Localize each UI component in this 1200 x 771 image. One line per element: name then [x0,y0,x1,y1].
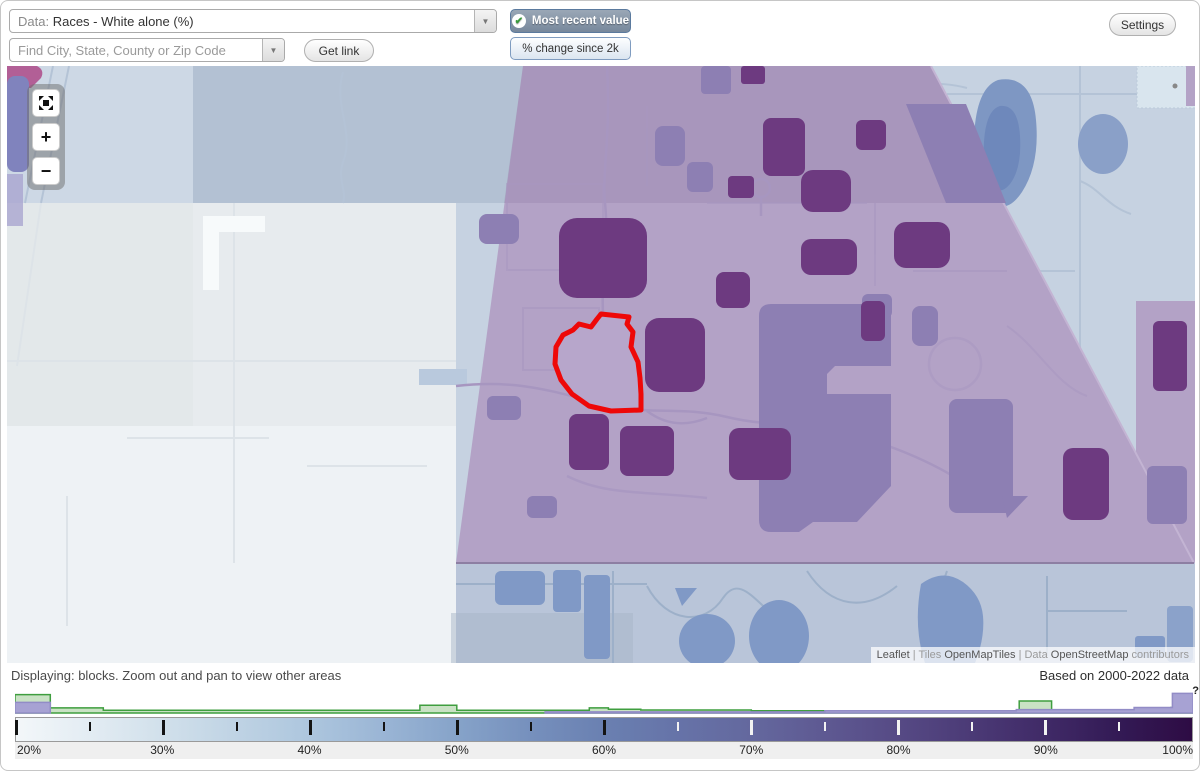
check-icon: ✔ [512,14,526,28]
leaflet-link[interactable]: Leaflet [877,649,910,661]
legend-label: 80% [886,743,910,757]
legend-gradient-bar [15,717,1193,742]
openmaptiles-link[interactable]: OpenMapTiles [944,649,1015,661]
attribution-separator: | [913,649,916,661]
attribution-separator: | [1019,649,1022,661]
app-window: Data: Races - White alone (%) ▼ ▼ Get li… [0,0,1200,771]
legend-tick [677,722,679,731]
pct-change-button[interactable]: % change since 2k [510,37,631,60]
legend-tick [750,720,753,735]
choropleth-block [7,174,23,226]
status-bar: Displaying: blocks. Zoom out and pan to … [7,664,1193,686]
legend-tick [456,720,459,735]
map-attribution: Leaflet | Tiles OpenMapTiles | Data Open… [871,647,1195,663]
dropdown-arrow-icon[interactable]: ▼ [262,39,284,61]
legend-label: 40% [297,743,321,757]
attribution-tiles-prefix: Tiles [918,649,941,661]
legend-tick [1118,722,1120,731]
color-scale-legend: 20%30%40%50%60%70%80%90%100% [15,717,1193,759]
map-controls: + − [27,84,65,190]
location-search[interactable]: ▼ [9,38,285,62]
legend-label: 100% [1162,743,1193,757]
legend-tick [236,722,238,731]
map-canvas[interactable]: + − Leaflet | Tiles OpenMapTiles | Data … [7,66,1195,663]
choropleth-block [7,76,29,172]
data-select-value: Data: Races - White alone (%) [10,14,474,29]
map-tiles [7,66,1195,663]
fullscreen-button[interactable] [32,89,60,117]
attribution-data-prefix: Data [1024,649,1047,661]
legend-label: 30% [150,743,174,757]
legend-tick [1044,720,1047,735]
displaying-status: Displaying: blocks. Zoom out and pan to … [11,668,341,683]
most-recent-value-label: Most recent value [532,15,629,27]
legend-label: 70% [739,743,763,757]
legend-labels: 20%30%40%50%60%70%80%90%100% [15,742,1193,759]
most-recent-value-button[interactable]: ✔ Most recent value [510,9,631,33]
map-building [419,369,467,385]
legend-tick [383,722,385,731]
openstreetmap-link[interactable]: OpenStreetMap [1051,649,1129,661]
tile-region [193,203,456,426]
zoom-in-button[interactable]: + [32,123,60,151]
histogram-plot [15,688,1193,714]
legend-label: 20% [17,743,41,757]
zoom-out-button[interactable]: − [32,157,60,185]
dropdown-arrow-icon[interactable]: ▼ [474,10,496,32]
legend-label: 60% [592,743,616,757]
data-select[interactable]: Data: Races - White alone (%) ▼ [9,9,497,33]
search-input[interactable] [10,43,262,58]
data-vintage-note: Based on 2000-2022 data [1039,668,1189,683]
legend-tick [309,720,312,735]
legend-label: 50% [445,743,469,757]
legend-tick [971,722,973,731]
legend-tick [603,720,606,735]
legend-tick [15,720,18,735]
tile-region [7,203,193,426]
value-histogram: ? [15,688,1193,714]
fullscreen-icon [39,96,53,110]
legend-tick [824,722,826,731]
legend-tick [530,722,532,731]
settings-button[interactable]: Settings [1109,13,1176,36]
legend-tick [162,720,165,735]
legend-tick [89,722,91,731]
map-marker-dot [1173,84,1178,89]
get-link-button[interactable]: Get link [304,39,374,62]
legend-label: 90% [1034,743,1058,757]
help-icon[interactable]: ? [1192,685,1199,697]
tile-region [193,66,523,203]
legend-tick [897,720,900,735]
attribution-data-suffix: contributors [1132,649,1189,661]
